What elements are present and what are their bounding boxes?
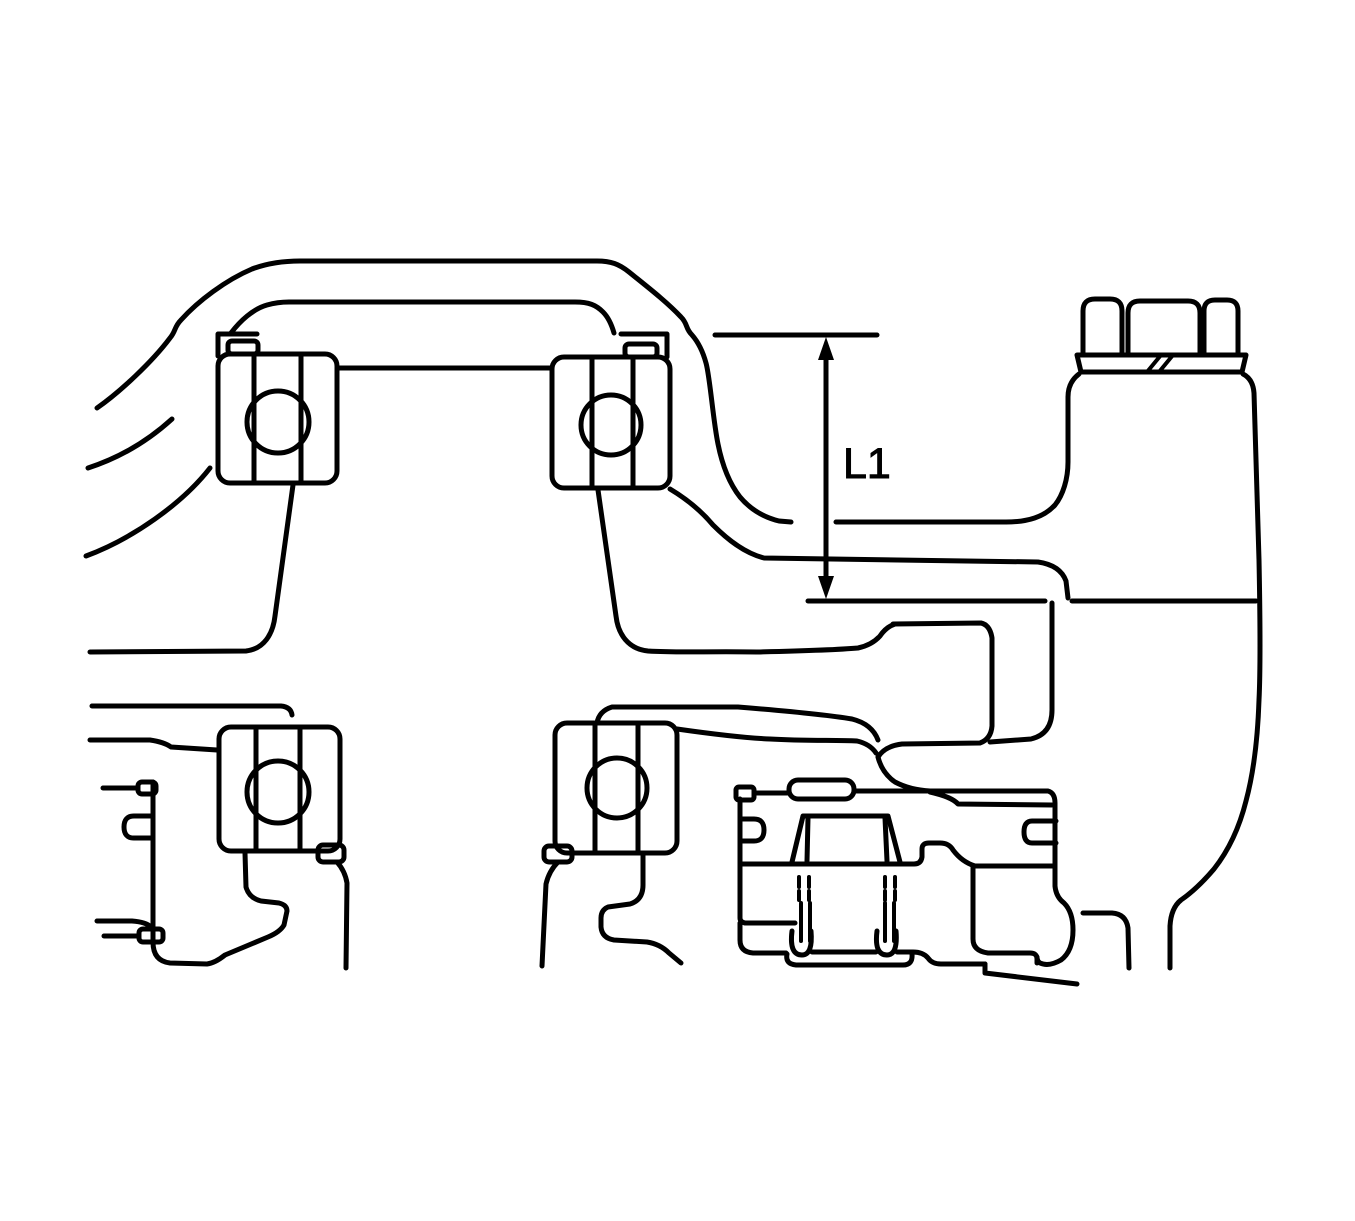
- valve-stems: [791, 903, 896, 955]
- bearing-cap-bottom-left: [219, 727, 347, 968]
- valve-spring-retainer-assembly: [736, 780, 1077, 984]
- bolt-column: [1083, 374, 1260, 968]
- casting-web-lines: [90, 489, 1256, 753]
- bearing-cap-top-left: [218, 341, 337, 483]
- locator-pill: [789, 780, 854, 799]
- diagram-canvas: L1: [0, 0, 1355, 1221]
- cap-key-tab: [625, 344, 657, 357]
- arrow-up-icon: [818, 337, 834, 360]
- casting-break-lines: [86, 419, 210, 556]
- relief-cavity: [878, 603, 1052, 791]
- cylinder-head-deck: [90, 485, 757, 652]
- bearing-cap-bottom-right: [542, 723, 681, 966]
- cap-key-tab: [228, 341, 258, 354]
- camshaft-housing-inner-outline: [218, 302, 667, 357]
- dimension-label: L1: [843, 440, 891, 488]
- washer-hatch-marks: [1147, 355, 1173, 372]
- diagram-linework: L1: [86, 261, 1260, 984]
- arrow-down-icon: [818, 576, 834, 599]
- engine-cross-section-diagram: L1: [0, 0, 1355, 1221]
- bolt-head: [1083, 299, 1238, 355]
- valve-stem-dashes: [799, 877, 895, 900]
- bearing-cap-top-right: [552, 344, 670, 488]
- bolt-washer: [1077, 355, 1246, 372]
